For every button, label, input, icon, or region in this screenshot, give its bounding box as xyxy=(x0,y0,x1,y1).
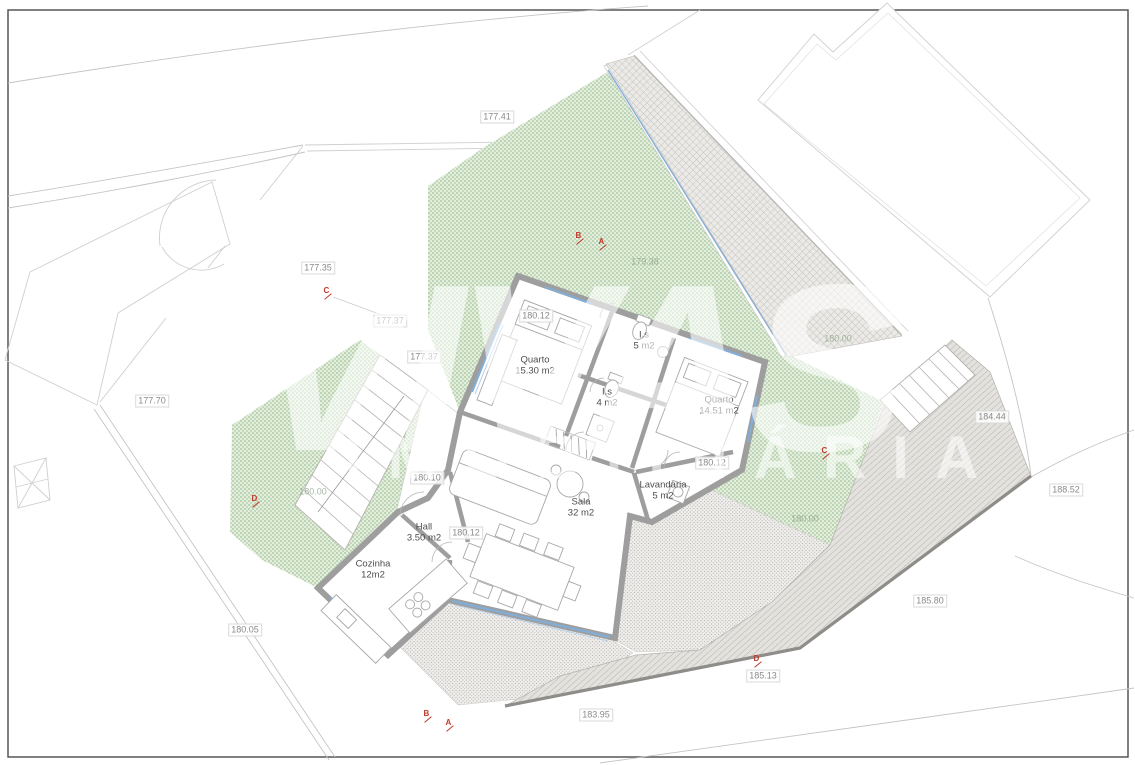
elevation-label: 180.12 xyxy=(449,527,483,540)
room-label: Sala32 m2 xyxy=(568,497,594,520)
chair xyxy=(551,465,561,475)
section-marker: D xyxy=(754,655,763,665)
elevation-label: 177.37 xyxy=(407,351,441,364)
room-label: Lavandaria5 m2 xyxy=(639,480,686,503)
elevation-label: 180.05 xyxy=(228,624,262,637)
room-label: Quarto14.51 m2 xyxy=(699,395,739,418)
round-table xyxy=(557,471,583,497)
floor-plan-drawing xyxy=(0,0,1135,765)
room-label: I.s4 m2 xyxy=(596,387,617,410)
room-label: I.s5 m2 xyxy=(633,330,654,353)
elevation-label: 180.12 xyxy=(519,310,553,323)
elevation-label: 185.80 xyxy=(913,595,947,608)
site-plan-page: VIVAS ® IMOBILIÁRIA 177.41177.35177.3717… xyxy=(0,0,1135,765)
section-marker: C xyxy=(822,447,831,457)
elevation-label: 180.00 xyxy=(821,333,855,346)
sink-1 xyxy=(658,347,669,358)
elevation-label: 180.00 xyxy=(296,486,330,499)
elevation-label: 184.44 xyxy=(975,411,1009,424)
section-marker: D xyxy=(252,495,261,505)
elevation-label: 180.12 xyxy=(695,457,729,470)
section-marker: B xyxy=(576,232,585,242)
elevation-label: 177.35 xyxy=(301,262,335,275)
room-label: Cozinha12m2 xyxy=(356,559,391,582)
elevation-label: 177.70 xyxy=(135,395,169,408)
section-marker: B xyxy=(424,710,433,720)
elevation-label: 188.52 xyxy=(1049,484,1083,497)
section-marker: A xyxy=(446,719,455,729)
room-label: Hall3.50 m2 xyxy=(407,522,441,545)
elevation-label: 179.38 xyxy=(628,256,662,269)
section-marker: A xyxy=(599,238,608,248)
elevation-label: 177.37 xyxy=(373,315,407,328)
elevation-label: 180.00 xyxy=(788,513,822,526)
section-marker: C xyxy=(324,287,333,297)
room-label: Quarto15.30 m2 xyxy=(515,355,555,378)
elevation-label: 177.41 xyxy=(480,111,514,124)
elevation-label: 185.13 xyxy=(746,670,780,683)
elevation-label: 183.95 xyxy=(579,709,613,722)
elevation-label: 180.10 xyxy=(410,472,444,485)
